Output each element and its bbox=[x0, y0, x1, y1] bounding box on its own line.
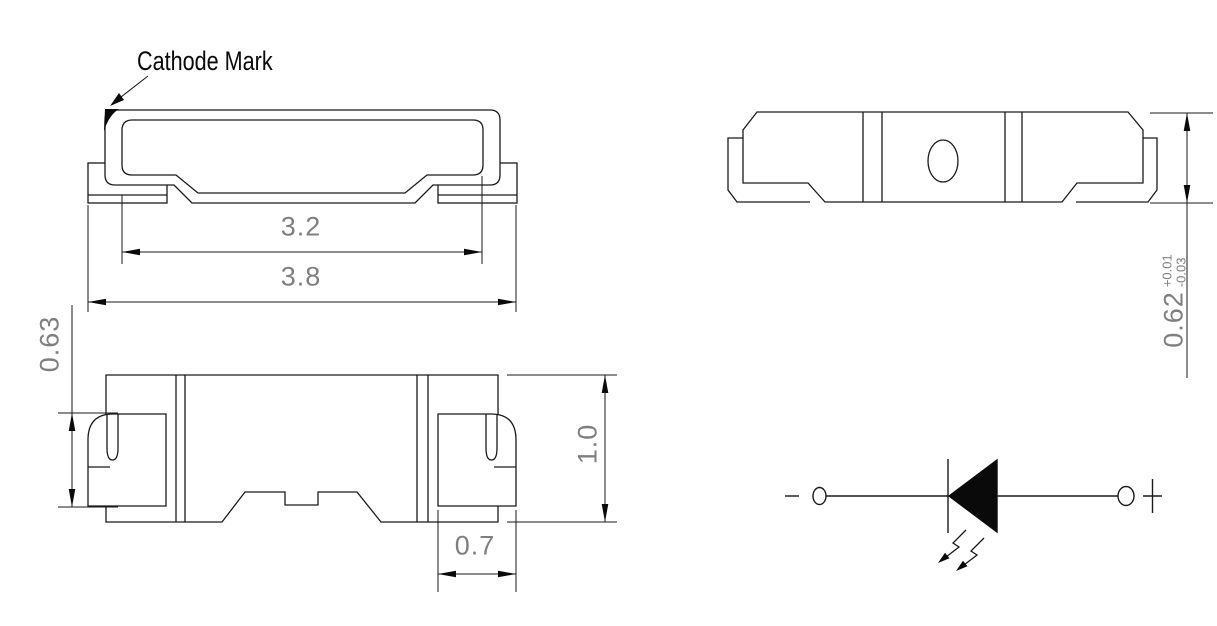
cathode-pointer-arrow bbox=[110, 76, 148, 106]
cathode-mark-label: Cathode Mark bbox=[137, 46, 273, 77]
side-view bbox=[728, 112, 1213, 378]
dim-text-side-height: 0.62 +0.01 -0.03 bbox=[1159, 254, 1190, 347]
dim-text-body-height: 1.0 bbox=[573, 424, 604, 465]
dim-text-pad-width: 0.7 bbox=[455, 531, 496, 562]
terminal-circle-left bbox=[813, 488, 826, 505]
tolerance-upper: +0.01 bbox=[1160, 254, 1174, 287]
dim-text-outer-width: 3.8 bbox=[281, 262, 322, 293]
dim-text-pad-height: 0.63 bbox=[35, 316, 66, 373]
tolerance-lower: -0.03 bbox=[1174, 254, 1188, 287]
light-emission-arrows bbox=[938, 530, 984, 571]
drawing-linework bbox=[0, 0, 1217, 626]
front-view bbox=[58, 305, 617, 592]
solder-pad-right bbox=[438, 414, 516, 506]
plus-symbol bbox=[1143, 479, 1162, 513]
engineering-drawing-page: Cathode Mark 3.2 3.8 0.63 1.0 0.7 0.62 +… bbox=[0, 0, 1217, 626]
diode-triangle bbox=[949, 460, 997, 532]
dim-text-inner-width: 3.2 bbox=[281, 212, 322, 243]
side-body-outline bbox=[743, 112, 1143, 202]
dim-text-side-height-value: 0.62 bbox=[1159, 291, 1190, 348]
solder-pad-left bbox=[88, 414, 166, 506]
dim-text-side-height-tolerance: +0.01 -0.03 bbox=[1160, 254, 1187, 287]
led-schematic bbox=[785, 459, 1162, 571]
terminal-circle-right bbox=[1118, 487, 1134, 506]
